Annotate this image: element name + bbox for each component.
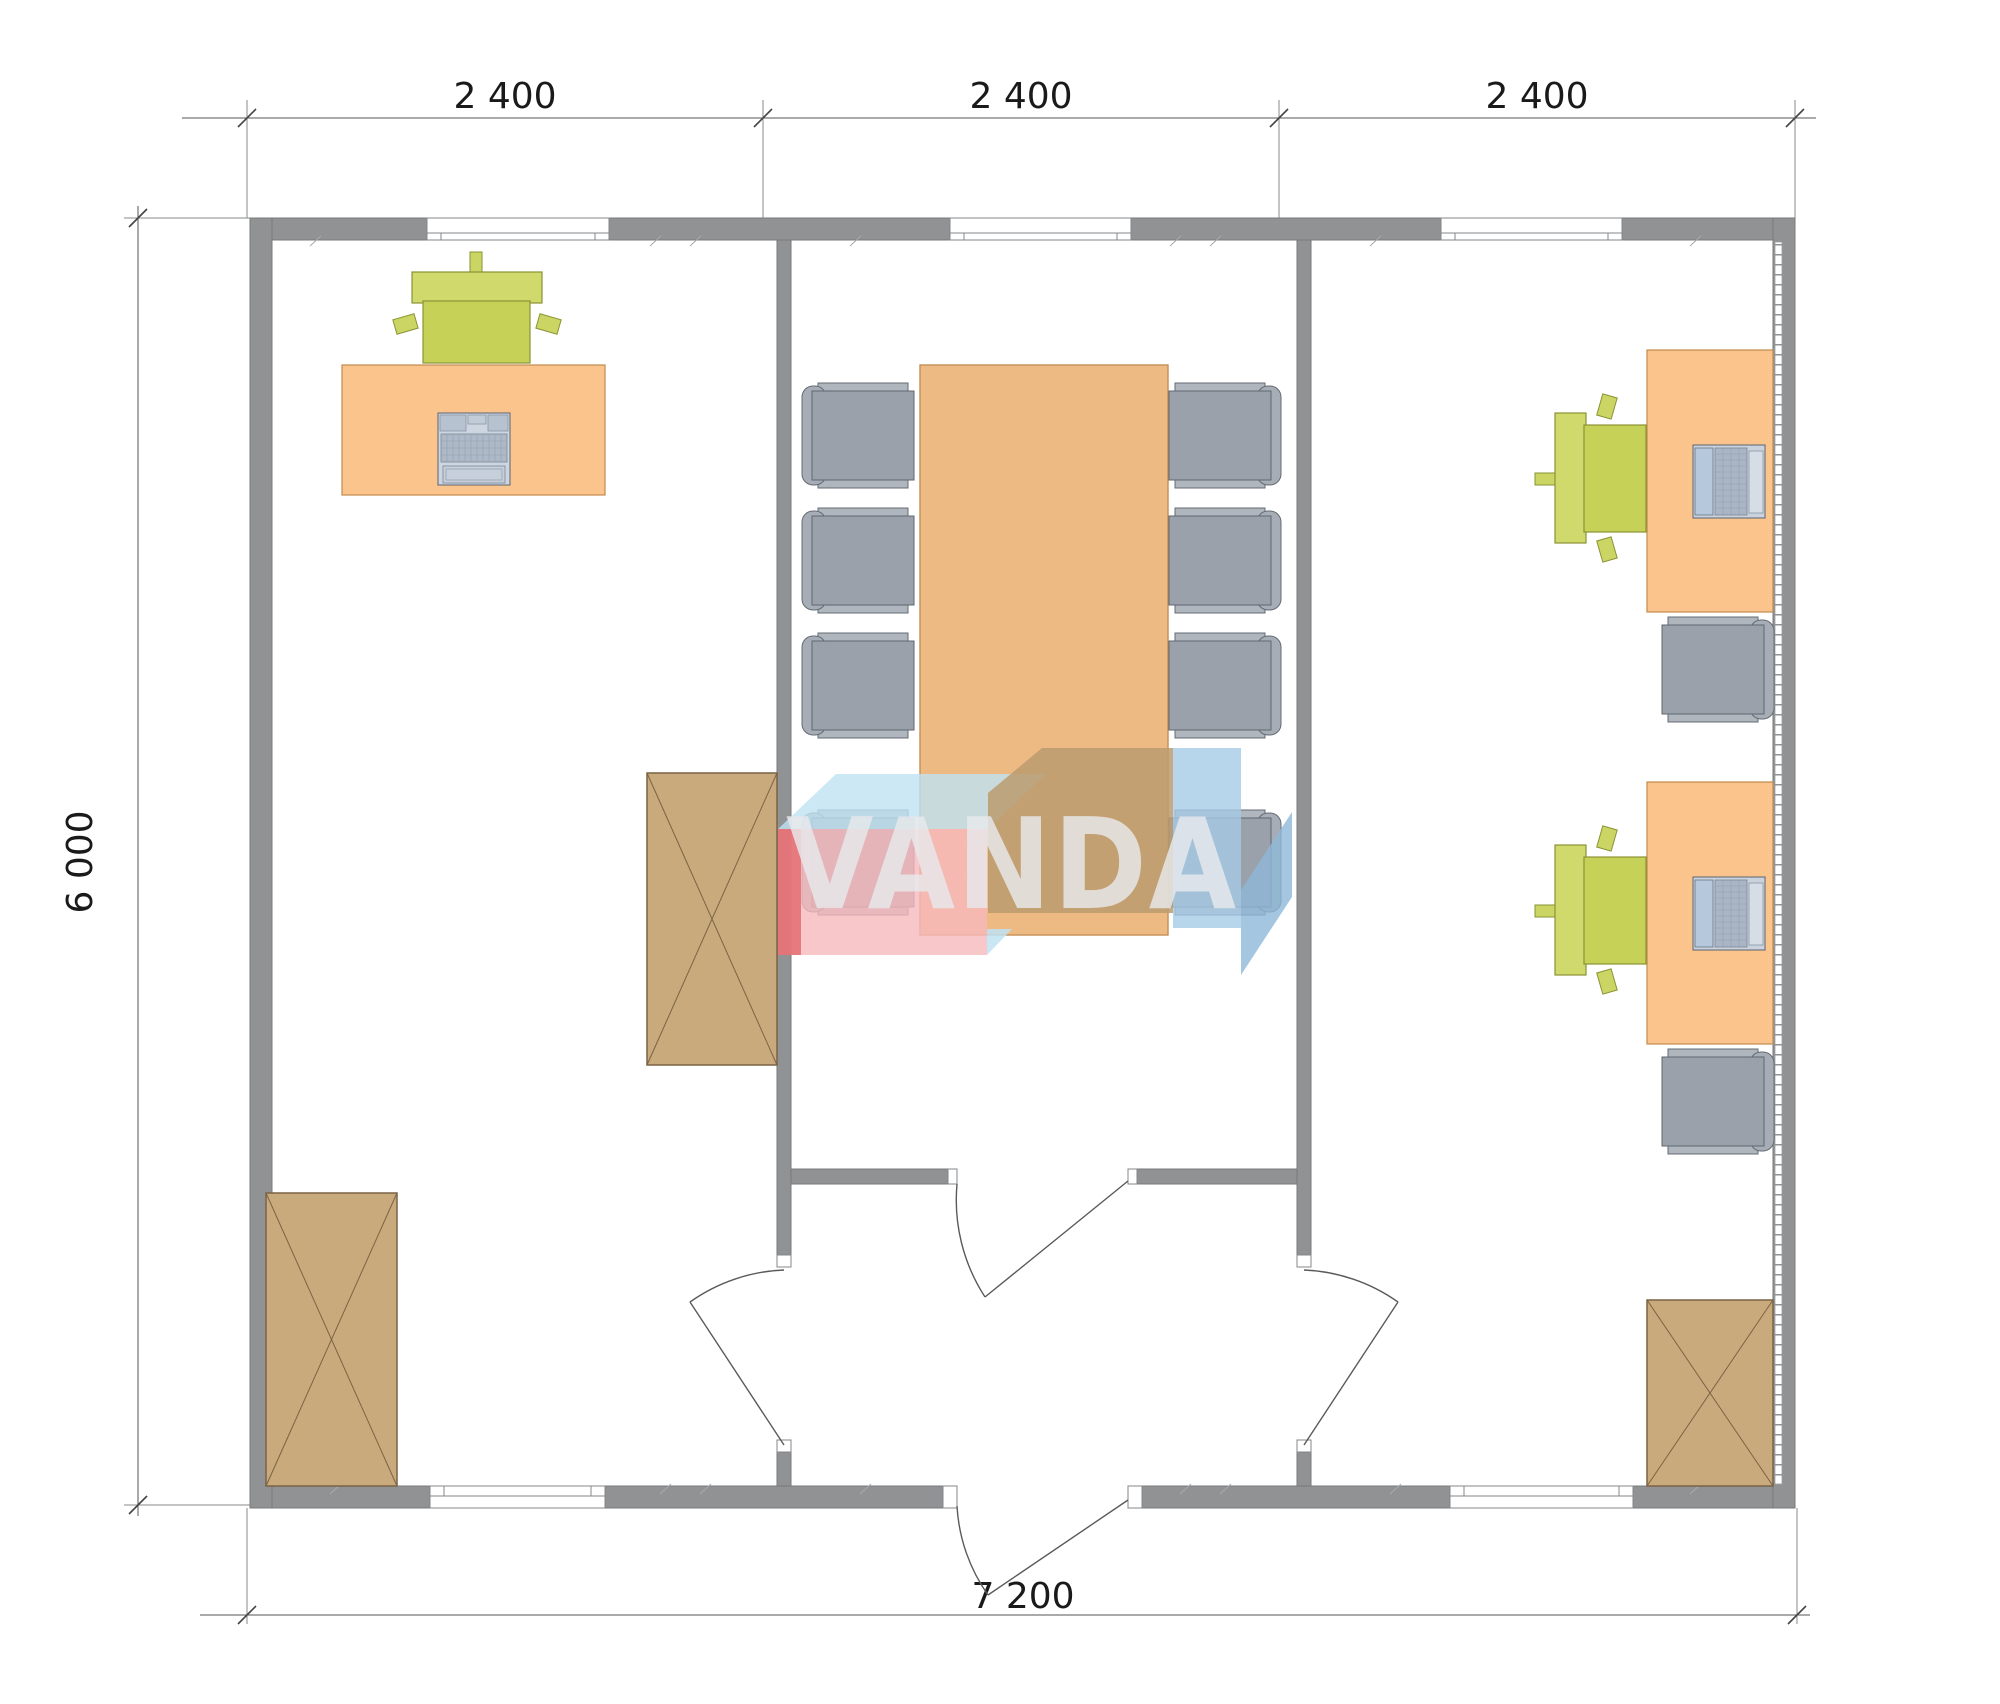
entrance-jamb-left [943, 1486, 957, 1508]
dimension-top-group: 2 400 2 400 2 400 [182, 76, 1816, 218]
door-left-room [690, 1270, 784, 1445]
left-door-jamb-bottom [777, 1440, 791, 1452]
doors [690, 1181, 1398, 1595]
laptop-2 [1693, 877, 1765, 950]
right-door-opening [1296, 1267, 1312, 1440]
dimension-label-left: 6 000 [60, 810, 101, 913]
office-chair-green-right-1 [1535, 394, 1646, 562]
window-top-middle [950, 218, 1131, 240]
door-middle-arc [956, 1184, 985, 1297]
room-left-office [266, 252, 777, 1486]
left-door-jamb-top [777, 1255, 791, 1267]
door-openings [776, 1168, 1312, 1510]
middle-door-opening [957, 1168, 1128, 1185]
window-top-right [1441, 218, 1622, 240]
dimension-left-group: 6 000 [60, 206, 250, 1516]
desktop-computer [438, 413, 510, 485]
window-bottom-right [1450, 1486, 1633, 1508]
dimension-label-top-3: 2 400 [1485, 76, 1588, 117]
conference-chair-left-3 [802, 633, 914, 738]
middle-door-jamb-right [1128, 1169, 1137, 1184]
hatch-strip [1775, 242, 1782, 1484]
cabinet-right-bottom [1647, 1300, 1773, 1486]
middle-door-jamb-left [948, 1169, 957, 1184]
door-left-arc [690, 1270, 784, 1302]
dimension-label-top-1: 2 400 [453, 76, 556, 117]
conference-chair-left-2 [802, 508, 914, 613]
conference-chair-left-1 [802, 383, 914, 488]
floor-plan-drawing: 2 400 2 400 2 400 6 000 7 200 [0, 0, 2000, 1704]
watermark-text: VANDA [786, 791, 1238, 938]
window-bottom-left [430, 1486, 605, 1508]
right-door-jamb-bottom [1297, 1440, 1311, 1452]
door-right-room [1304, 1270, 1398, 1445]
door-right-leaf [1304, 1302, 1398, 1445]
floor-plan-canvas: 2 400 2 400 2 400 6 000 7 200 [0, 0, 2000, 1704]
dimension-label-top-2: 2 400 [969, 76, 1072, 117]
task-chair-right-1 [1662, 617, 1774, 722]
right-door-jamb-top [1297, 1255, 1311, 1267]
conference-chair-right-1 [1169, 383, 1281, 488]
cabinet-left-middle [647, 773, 777, 1065]
cabinet-left-bottom [266, 1193, 397, 1486]
dimension-label-bottom: 7 200 [971, 1576, 1074, 1617]
conference-chair-right-2 [1169, 508, 1281, 613]
dimension-extension-lines-left [124, 218, 250, 1505]
left-door-opening [776, 1267, 792, 1440]
office-chair-green-right-2 [1535, 826, 1646, 994]
dimension-bottom-group: 7 200 [200, 1508, 1810, 1624]
entrance-opening [957, 1484, 1128, 1510]
door-middle-room [956, 1181, 1128, 1297]
laptop-1 [1693, 445, 1765, 518]
task-chair-right-2 [1662, 1049, 1774, 1154]
door-middle-leaf [985, 1181, 1128, 1297]
conference-chair-right-3 [1169, 633, 1281, 738]
office-chair-green-left [393, 252, 561, 363]
door-left-leaf [690, 1302, 784, 1445]
door-right-arc [1304, 1270, 1398, 1302]
window-top-left [427, 218, 609, 240]
right-wall-hatch [1775, 242, 1782, 1484]
entrance-jamb-right [1128, 1486, 1142, 1508]
room-right-office [1535, 350, 1774, 1486]
watermark: VANDA [778, 748, 1292, 975]
